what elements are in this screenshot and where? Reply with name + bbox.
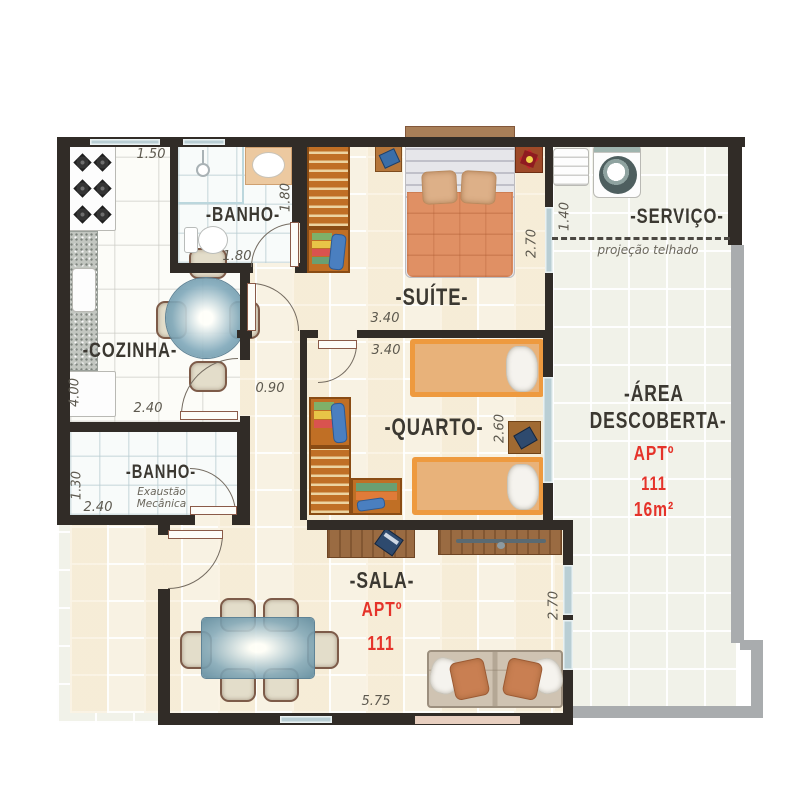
wall-banho2-right xyxy=(237,432,250,515)
washer-drum xyxy=(599,156,637,194)
dim-banho1-bottom: 1.80 xyxy=(217,249,257,264)
wall-sala-left xyxy=(158,589,170,713)
window-balcony-hint xyxy=(280,716,332,723)
sideboard xyxy=(327,527,415,558)
label-area-number: 111 xyxy=(599,474,709,496)
label-servico: -SERVIÇO- xyxy=(613,204,742,229)
label-area-line2: DESCOBERTA- xyxy=(590,409,719,435)
quarto-wardrobe-shelves xyxy=(309,397,351,447)
nightstand-flower xyxy=(515,145,543,173)
label-sala-apt-number: 111 xyxy=(326,632,436,656)
label-sala-apt: APTº xyxy=(327,598,437,622)
burner-icon xyxy=(93,205,111,223)
door-cozinha xyxy=(180,411,238,420)
wall-vestibule xyxy=(237,330,252,338)
balcony-floor-hint xyxy=(415,716,520,724)
roof-projection-line xyxy=(552,237,730,240)
bed-blanket xyxy=(407,192,513,277)
wall-cozinha-bottom xyxy=(57,422,250,432)
suite-wardrobe xyxy=(307,145,350,228)
window-sala-1 xyxy=(563,565,573,615)
burner-icon xyxy=(73,205,91,223)
label-quarto: -QUARTO- xyxy=(360,415,507,443)
washing-machine xyxy=(593,144,641,198)
nightstand xyxy=(375,145,402,172)
dim-hall: 0.90 xyxy=(250,381,290,396)
dim-cozinha-bottom: 2.40 xyxy=(128,401,168,416)
bed-pillow xyxy=(506,346,538,392)
door-quarto xyxy=(318,340,357,349)
dim-sala-right: 2.70 xyxy=(547,584,562,628)
dim-sala-bottom: 5.75 xyxy=(354,694,398,709)
window-quarto xyxy=(543,377,553,483)
label-banho2-note: Exaustão Mecânica xyxy=(124,486,199,510)
wall-banho2-bottom-stub xyxy=(232,515,250,525)
bed-pillow xyxy=(460,170,497,205)
label-roof-projection: projeção telhado xyxy=(578,243,718,257)
label-area-size: 16m² xyxy=(599,498,709,522)
kitchen-sink xyxy=(72,268,96,312)
dim-banho1-right: 1.80 xyxy=(279,176,294,220)
dim-quarto-right: 2.60 xyxy=(493,407,508,451)
dim-banho2-bottom: 2.40 xyxy=(78,500,118,515)
laptop-icon xyxy=(374,527,403,556)
flower-center xyxy=(526,156,533,163)
label-banho2: -BANHO- xyxy=(115,462,207,484)
label-sala: -SALA- xyxy=(318,569,447,595)
label-suite: -SUÍTE- xyxy=(368,285,497,313)
burner-icon xyxy=(93,179,111,197)
burner-icon xyxy=(93,153,111,171)
wall-cozinha-banho1 xyxy=(170,137,178,263)
wall-suite-bottom xyxy=(357,330,553,338)
shower-screen xyxy=(178,147,244,204)
wall-quarto-bottom xyxy=(307,520,553,530)
window-suite xyxy=(545,207,553,273)
dining-table xyxy=(202,618,314,678)
quarto-wardrobe-ext xyxy=(351,478,402,515)
stove xyxy=(68,145,116,231)
phone-icon xyxy=(513,426,537,449)
door-entry xyxy=(168,530,223,539)
window-sala-2 xyxy=(563,620,573,670)
nightstand xyxy=(508,421,541,454)
suite-wardrobe-shelves xyxy=(307,228,350,273)
vanity-sink xyxy=(252,152,285,178)
door-suite xyxy=(247,283,256,331)
toilet xyxy=(184,227,198,253)
door-banho1 xyxy=(290,222,299,267)
label-banho1: -BANHO- xyxy=(197,203,289,227)
dim-cozinha-left: 4.00 xyxy=(68,371,83,415)
bed-pillow xyxy=(507,464,539,510)
wall-suite-bottom-stub xyxy=(300,330,318,338)
wall-area-right xyxy=(731,245,744,643)
label-cozinha: -COZINHA- xyxy=(66,338,195,363)
burner-icon xyxy=(73,179,91,197)
tv-rack xyxy=(438,527,562,555)
label-area-line1: -ÁREA xyxy=(590,382,719,408)
dim-suite-right: 2.70 xyxy=(525,222,540,266)
window-banho1 xyxy=(183,139,225,145)
wall-banho2-bottom xyxy=(57,515,195,525)
wall-corridor-right xyxy=(300,338,307,520)
dim-suite-bottom: 3.40 xyxy=(365,311,405,326)
quarto-wardrobe xyxy=(309,447,351,515)
dim-banho1-top: 1.50 xyxy=(131,147,171,162)
wall-area-right-low xyxy=(751,648,763,710)
dim-quarto-top: 3.40 xyxy=(366,343,406,358)
floor-plan: -BANHO- -COZINHA- -SUÍTE- -SERVIÇO- -QUA… xyxy=(0,0,800,800)
burner-icon xyxy=(73,153,91,171)
phone-icon xyxy=(379,148,401,169)
wall-left xyxy=(57,137,70,525)
bed-pillow xyxy=(421,170,458,205)
wall-area-bottom xyxy=(568,706,763,718)
window-cozinha xyxy=(90,139,160,145)
wall-top xyxy=(57,137,745,147)
wall-suite-left xyxy=(300,137,307,270)
label-area-apt: APTº xyxy=(599,442,709,466)
wall-sala-topright xyxy=(543,520,573,530)
dim-servico-left: 1.40 xyxy=(558,195,573,239)
sofa-pillow xyxy=(448,657,490,701)
laundry-tank xyxy=(553,148,589,186)
